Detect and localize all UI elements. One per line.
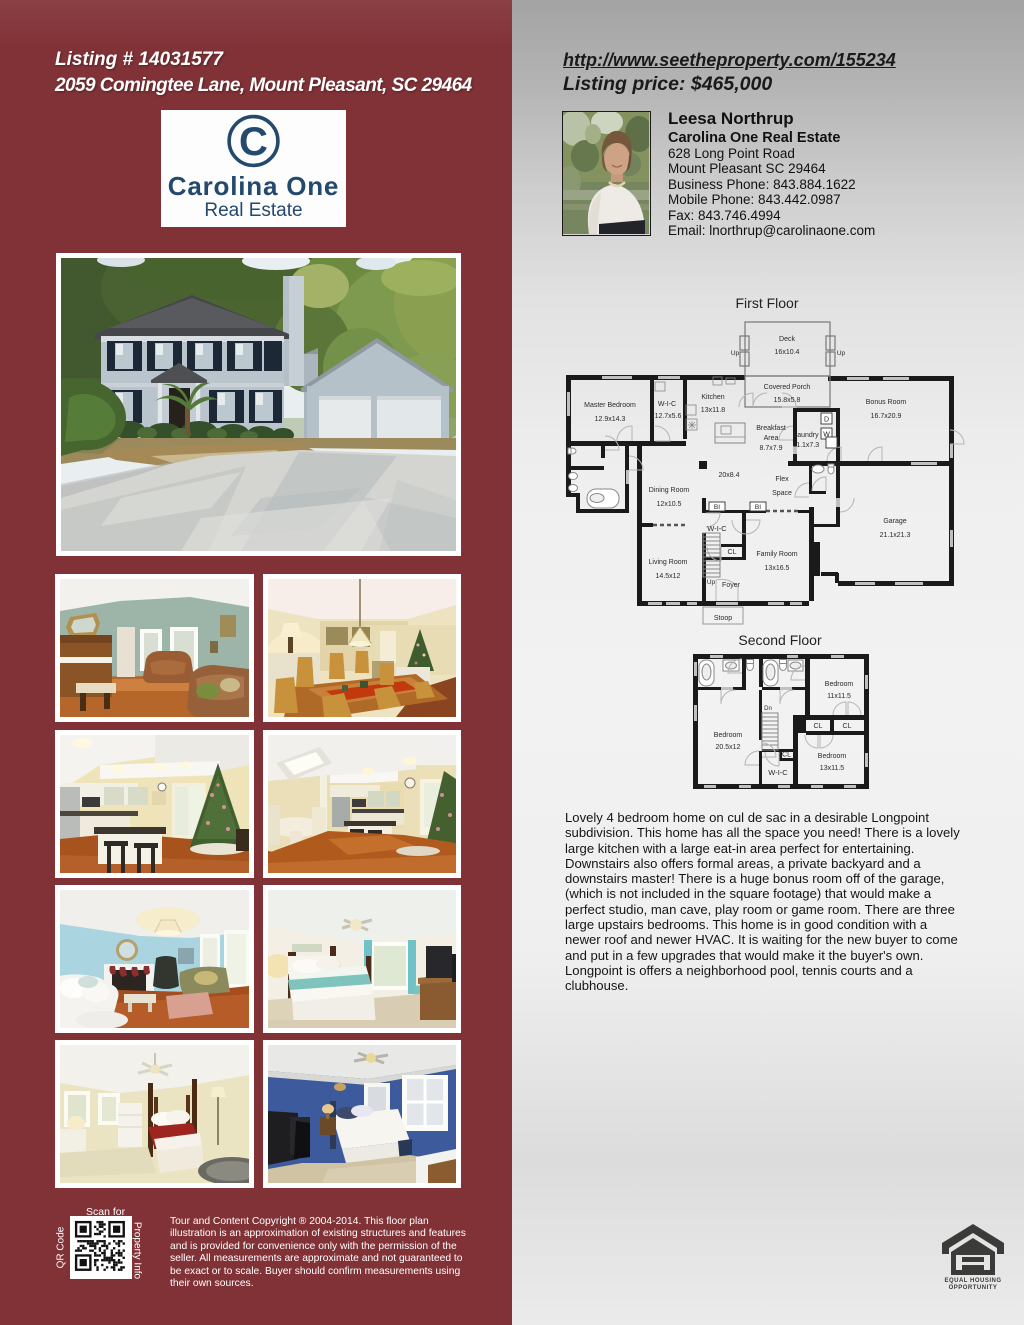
svg-text:Dining Room: Dining Room bbox=[649, 487, 690, 494]
svg-text:Up: Up bbox=[731, 350, 740, 357]
svg-text:11x11.5: 11x11.5 bbox=[827, 693, 851, 700]
svg-text:Covered Porch: Covered Porch bbox=[764, 384, 811, 391]
svg-text:Living Room: Living Room bbox=[649, 559, 688, 566]
svg-text:W: W bbox=[823, 432, 830, 439]
svg-text:CL: CL bbox=[814, 723, 823, 730]
svg-text:21.1x21.3: 21.1x21.3 bbox=[880, 532, 911, 539]
svg-text:EQUAL HOUSING: EQUAL HOUSING bbox=[944, 1278, 1001, 1284]
svg-text:W-I-C: W-I-C bbox=[768, 768, 788, 777]
svg-text:CL: CL bbox=[843, 723, 852, 730]
svg-text:13x11.5: 13x11.5 bbox=[820, 765, 844, 772]
svg-text:OPPORTUNITY: OPPORTUNITY bbox=[949, 1285, 998, 1291]
svg-text:Family Room: Family Room bbox=[756, 551, 797, 558]
svg-text:BI: BI bbox=[755, 504, 761, 511]
svg-text:16.7x20.9: 16.7x20.9 bbox=[871, 413, 902, 420]
svg-text:Carolina One: Carolina One bbox=[168, 171, 339, 201]
svg-text:Garage: Garage bbox=[883, 518, 906, 525]
svg-text:Area: Area bbox=[764, 435, 779, 442]
svg-text:20x8.4: 20x8.4 bbox=[718, 472, 739, 479]
svg-text:W-I-C: W-I-C bbox=[707, 524, 727, 533]
svg-text:W-I-C: W-I-C bbox=[658, 401, 676, 408]
svg-text:16x10.4: 16x10.4 bbox=[775, 349, 800, 356]
svg-text:11.1x7.3: 11.1x7.3 bbox=[793, 442, 819, 449]
svg-text:Bedroom: Bedroom bbox=[714, 732, 743, 739]
svg-text:Bonus Room: Bonus Room bbox=[866, 399, 907, 406]
svg-text:Flex: Flex bbox=[775, 476, 789, 483]
svg-text:C: C bbox=[239, 120, 268, 164]
svg-text:12.9x14.3: 12.9x14.3 bbox=[595, 416, 626, 423]
svg-text:Space: Space bbox=[772, 490, 792, 497]
svg-text:Master Bedroom: Master Bedroom bbox=[584, 402, 636, 409]
svg-text:20.5x12: 20.5x12 bbox=[716, 744, 741, 751]
svg-text:Kitchen: Kitchen bbox=[701, 394, 724, 401]
svg-text:CL: CL bbox=[728, 549, 737, 556]
svg-text:15.8x5.8: 15.8x5.8 bbox=[774, 397, 801, 404]
svg-text:Bedroom: Bedroom bbox=[818, 753, 847, 760]
svg-text:BI: BI bbox=[714, 504, 720, 511]
svg-text:14.5x12: 14.5x12 bbox=[656, 573, 681, 580]
svg-text:Up: Up bbox=[837, 350, 846, 357]
svg-text:Deck: Deck bbox=[779, 336, 795, 343]
svg-text:Laundry: Laundry bbox=[793, 432, 819, 439]
svg-text:Real Estate: Real Estate bbox=[204, 200, 302, 221]
svg-text:Dn: Dn bbox=[764, 706, 772, 712]
svg-text:12x10.5: 12x10.5 bbox=[657, 501, 682, 508]
svg-text:13x16.5: 13x16.5 bbox=[765, 565, 790, 572]
svg-text:Foyer: Foyer bbox=[722, 582, 741, 589]
svg-text:8.7x7.9: 8.7x7.9 bbox=[760, 445, 783, 452]
svg-text:Up: Up bbox=[707, 579, 716, 586]
svg-text:CL: CL bbox=[782, 752, 791, 759]
svg-text:D: D bbox=[824, 417, 829, 424]
svg-text:12.7x5.6: 12.7x5.6 bbox=[655, 413, 682, 420]
svg-text:Stoop: Stoop bbox=[714, 615, 732, 622]
svg-text:Breakfast: Breakfast bbox=[756, 425, 786, 432]
svg-text:Bedroom: Bedroom bbox=[825, 681, 854, 688]
svg-text:13x11.8: 13x11.8 bbox=[701, 407, 725, 414]
